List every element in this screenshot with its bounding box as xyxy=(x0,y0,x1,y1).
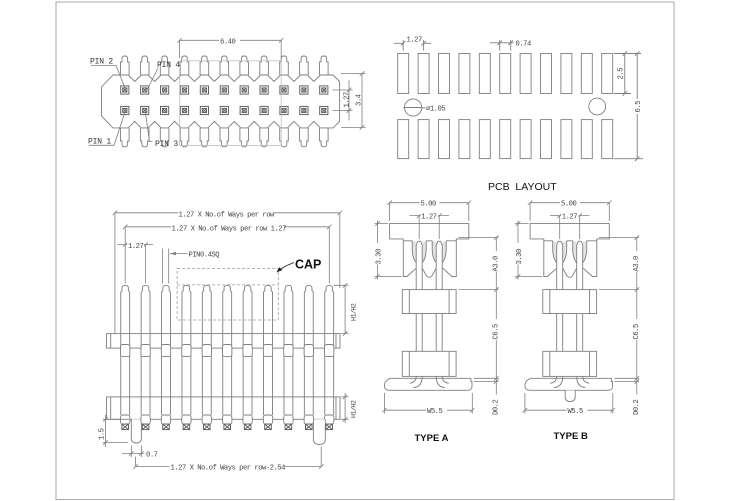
svg-text:TYPE B: TYPE B xyxy=(554,431,588,442)
svg-text:PIN 1: PIN 1 xyxy=(88,138,111,147)
svg-text:PIN 3: PIN 3 xyxy=(155,140,178,149)
svg-text:3.4: 3.4 xyxy=(355,94,363,106)
svg-text:1.27: 1.27 xyxy=(407,36,422,44)
svg-text:TYPE A: TYPE A xyxy=(415,433,449,444)
svg-text:H1/H2: H1/H2 xyxy=(350,303,358,321)
svg-text:1.27: 1.27 xyxy=(344,92,352,107)
svg-text:CAP: CAP xyxy=(295,258,321,272)
svg-text:⌀1.05: ⌀1.05 xyxy=(426,106,445,114)
svg-text:1.27 X No.of Ways per row-2.54: 1.27 X No.of Ways per row-2.54 xyxy=(171,464,286,472)
svg-text:H1/H2: H1/H2 xyxy=(350,400,358,418)
svg-text:D0.2: D0.2 xyxy=(492,400,500,415)
svg-text:5.00: 5.00 xyxy=(421,200,436,208)
svg-text:PIN0.4SQ: PIN0.4SQ xyxy=(189,252,220,260)
svg-text:PIN 2: PIN 2 xyxy=(90,58,113,67)
svg-text:PIN 4: PIN 4 xyxy=(157,61,180,70)
svg-text:2.5: 2.5 xyxy=(618,68,626,80)
svg-text:0.7: 0.7 xyxy=(146,451,158,459)
svg-text:1.5: 1.5 xyxy=(98,428,106,440)
svg-text:6.40: 6.40 xyxy=(220,39,235,47)
svg-text:0.74: 0.74 xyxy=(516,40,531,48)
svg-text:1.27 X No.of Ways per row 1.27: 1.27 X No.of Ways per row 1.27 xyxy=(172,226,287,234)
svg-text:C6.5: C6.5 xyxy=(492,324,500,339)
svg-text:3.30: 3.30 xyxy=(376,249,384,264)
svg-text:1.27: 1.27 xyxy=(421,213,436,221)
svg-text:W5.5: W5.5 xyxy=(427,408,442,416)
svg-text:6.5: 6.5 xyxy=(635,101,643,113)
svg-text:1.27: 1.27 xyxy=(128,243,143,251)
svg-text:A3.0: A3.0 xyxy=(492,256,500,271)
svg-text:PCB LAYOUT: PCB LAYOUT xyxy=(488,181,557,193)
svg-text:1.27 X No.of Ways per row: 1.27 X No.of Ways per row xyxy=(179,212,276,220)
